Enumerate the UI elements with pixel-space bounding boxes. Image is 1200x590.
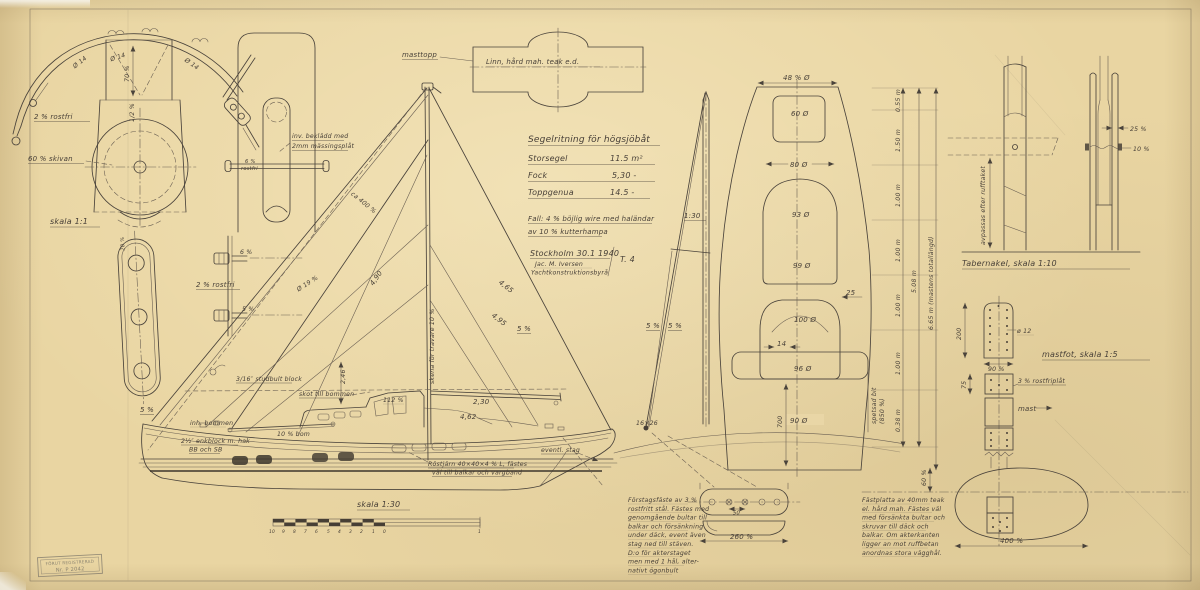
note-label: inv. beklädd med — [292, 133, 348, 140]
dim-label: 2,30 — [473, 398, 490, 406]
stamp-text: FÖRUT REGISTRERAD — [45, 559, 94, 567]
note-line: Fästplatta av 40mm teak — [862, 496, 945, 504]
material-label: Linn, hård mah. teak e.d. — [486, 57, 579, 66]
detail-label: masttopp — [402, 51, 437, 59]
dim-label: 6.65 m (mastens totallängd) — [927, 236, 935, 330]
scale-tick: 5 — [327, 529, 330, 535]
dim-label: 5 % — [646, 322, 660, 330]
dim-label: 5 % — [668, 322, 682, 330]
scale-bar: skala 1:30 10 9 8 7 6 5 4 3 2 1 0 1 — [269, 500, 481, 535]
sheave-label: 60 % skivan — [28, 155, 73, 163]
mast-outline — [719, 87, 871, 470]
dim-label: 93 Ø — [792, 211, 810, 219]
halyard-note: Fall: 4 % böjlig wire med haländar — [528, 215, 655, 223]
dark-port — [338, 452, 354, 461]
axle-label: 6 % — [245, 159, 255, 165]
sail-name: Toppgenua — [528, 188, 574, 197]
inner-forestay — [232, 140, 428, 428]
scale-label: 1:30 — [684, 212, 701, 220]
clamp-lug — [108, 31, 124, 35]
scale-label: skala 1:1 — [50, 217, 88, 226]
scale-tick: 7 — [304, 529, 307, 535]
dim-label: 80 Ø — [790, 161, 808, 169]
dark-port — [312, 453, 328, 462]
dim-label: 1.50 m — [895, 129, 902, 152]
dim-label: 6 % — [240, 249, 252, 256]
note-line: men med 1 hål, alter- — [628, 557, 699, 566]
material-label: 3 % rostfriplåt — [1018, 376, 1065, 385]
fitting-label: 3/16″ studbult block — [236, 375, 302, 383]
dim-label: Ø 19 % — [294, 274, 319, 294]
detail-label: mastfot, skala 1:5 — [1042, 350, 1118, 359]
footplate-note: Fästplatta av 40mm teak el. hård mah. Fä… — [862, 496, 945, 557]
portlight — [334, 412, 345, 418]
note-line: D:o för akterstaget — [628, 549, 691, 557]
dim-label: 60 Ø — [791, 110, 809, 118]
dark-port — [256, 455, 272, 464]
spec-block: Segelritning för högsjöbåt Storsegel 11.… — [528, 134, 660, 277]
forestay-fitting-detail: 50 260 % Förstagsfäste av 3 % rostfritt … — [628, 483, 800, 574]
dim-label: 1/2 % — [129, 103, 136, 122]
place-date: Stockholm 30.1 1940 — [530, 249, 619, 258]
forestay-note: Förstagsfäste av 3 % rostfritt stål. Fäs… — [628, 496, 709, 574]
clamp-plate — [223, 96, 253, 127]
mast-construction: 48 % Ø 60 Ø 80 Ø 93 Ø 99 Ø 25 100 Ø 14 9… — [719, 74, 938, 478]
part-label: mast — [1018, 405, 1036, 413]
note-label: 2mm mässingsplåt — [292, 141, 354, 150]
note-line: balkar. Om akterkanten — [862, 531, 940, 539]
dim-label: 400 % — [1000, 537, 1023, 545]
dim-label: 4,62 — [460, 413, 477, 421]
portlight — [318, 414, 329, 420]
note-line: el. hård mah. Fästes väl — [862, 504, 941, 513]
sheet-number: T. 4 — [620, 255, 635, 264]
dim-label: 75 — [961, 381, 968, 389]
stay-note: eventl. stag — [541, 446, 580, 454]
note-line: Förstagsfäste av 3 % — [628, 496, 697, 504]
masthead-crane-plan: 70 % 1/2 % Ø 14 Ø 14 Ø 14 2 % rostfri 60… — [12, 29, 243, 229]
note-line: genomgående bultar till — [628, 513, 707, 522]
mast-tang-strap: 20 % — [117, 230, 162, 405]
dim-label: ø 12 — [1016, 328, 1031, 335]
keel — [162, 478, 540, 490]
masthead-side-view: 6 % rostfri inv. beklädd med 2mm mässing… — [223, 33, 355, 232]
sail-area: 5,30 - — [612, 171, 636, 180]
stamp-text: Nr. P 2042 — [56, 566, 85, 574]
dim-label: 4,65 — [497, 279, 515, 296]
sail-area: 14.5 - — [610, 188, 634, 197]
scale-tick: 1 — [478, 529, 481, 535]
signature: Jac. M. Iversen — [533, 261, 583, 268]
dim-label: 90 % — [988, 366, 1005, 373]
sail-area: 11.5 m² — [610, 154, 643, 163]
dim-label: 200 — [956, 328, 963, 340]
deck-fitting — [558, 427, 564, 430]
dim-label: 5 % — [517, 325, 531, 333]
bolt-dots — [989, 305, 1008, 351]
scale-tick: 2 — [360, 529, 363, 535]
dim-label: 700 — [777, 416, 784, 428]
dim-label: 2,46 — [340, 369, 347, 384]
deck-curve — [614, 433, 905, 453]
fitting-label: skot till bommen — [299, 390, 354, 398]
halyard-note: av 10 % kutterhampa — [528, 228, 608, 236]
hull-port — [412, 444, 426, 451]
masthead — [422, 83, 433, 90]
dim-label: 0.38 m — [895, 409, 902, 432]
tabernacle-detail: avpassas efter rufftaket 25 % 10 % Taber… — [948, 56, 1150, 269]
dim-label: 5.08 m — [911, 270, 918, 293]
forestay — [152, 88, 427, 421]
dim-label: 99 Ø — [793, 262, 811, 270]
portlight — [350, 411, 361, 417]
scale-tick: 1 — [372, 529, 375, 535]
scale-tick: 3 — [349, 529, 352, 535]
drawing-sheet: 70 % 1/2 % Ø 14 Ø 14 Ø 14 2 % rostfri 60… — [0, 0, 1200, 590]
note-line: balkar och försänkning — [628, 523, 703, 530]
note-line: med försänkta bultar och — [862, 514, 945, 522]
dim-label: 1.00 m — [895, 352, 902, 375]
note-line: nativt ögonbult — [628, 566, 679, 574]
datum-line — [185, 389, 566, 391]
note-label: avpassas efter rufftaket — [979, 166, 987, 245]
dim-label: 20 % — [120, 237, 127, 251]
note-line: rostfritt stål. Fästes med — [628, 504, 709, 513]
dim-label: 50 — [733, 511, 741, 517]
dim-label: 0.55 m — [895, 89, 902, 112]
dim-label: Ø 14 — [182, 56, 200, 72]
rig-front-view: 1:30 5 % 5 % 16×26 — [614, 92, 905, 487]
dim-label: 1.00 m — [895, 294, 902, 317]
note-line: stag ned till stäven. — [628, 540, 694, 548]
chainplate-note: Röstjärn 40×40×4 % L, fästes — [428, 460, 528, 468]
material-label: 2 % rostfri — [34, 113, 73, 121]
dim-label: 4,90 — [368, 269, 384, 287]
note-line: ligger an mot ruffbetan — [862, 540, 939, 548]
scale-tick: 4 — [338, 529, 341, 535]
fitting-label: BB och SB — [189, 447, 223, 454]
note-label: spetsad bit — [870, 387, 878, 424]
sheet-border — [30, 9, 1191, 581]
dim-label: 25 % — [1130, 126, 1147, 133]
dim-label: 10 % bom — [277, 431, 310, 438]
shackle — [12, 137, 20, 145]
dim-label: 112 % — [383, 397, 404, 404]
dim-label: 70 % — [124, 65, 131, 82]
mast-track-label: skena för travare 10 % — [428, 309, 436, 384]
genoa-luff — [148, 88, 426, 450]
fitting-label: inh. bommen — [190, 420, 233, 427]
dim-label: 1.00 m — [895, 184, 902, 207]
dim-label: 25 — [846, 289, 856, 297]
clamp-lug — [142, 29, 158, 32]
clamp-lug — [192, 39, 208, 42]
blueprint-canvas: 70 % 1/2 % Ø 14 Ø 14 Ø 14 2 % rostfri 60… — [0, 0, 1200, 590]
shackle — [30, 100, 37, 107]
stem — [142, 424, 162, 478]
masttopp-detail: Linn, hård mah. teak e.d. masttopp — [402, 28, 646, 112]
scale-tick: 0 — [383, 529, 386, 535]
counter-stern — [592, 429, 615, 458]
scale-tick: 6 — [315, 529, 318, 535]
dim-label: 48 % Ø — [783, 74, 810, 82]
mast-bolt-detail: 6 % 5 % 2 % rostfri Ø 19 % — [196, 236, 320, 375]
dim-label: ca 400 % — [349, 191, 377, 216]
note-line: skruvar till däck och — [862, 522, 929, 530]
fitting-label: 2½″ enkblock m. hak — [181, 437, 250, 445]
dim-label: 96 Ø — [794, 365, 812, 373]
hull-port — [452, 443, 466, 450]
scale-tick: 8 — [293, 529, 296, 535]
material-label: 2 % rostfri — [196, 281, 235, 289]
dim-label: 100 Ø — [794, 316, 816, 324]
signature: Yachtkonstruktionsbyrå — [531, 268, 608, 277]
dim-label: Ø 14 — [70, 54, 88, 70]
dim-label: 90 Ø — [790, 417, 808, 425]
detail-label: Tabernakel, skala 1:10 — [962, 259, 1057, 268]
scale-tick: 9 — [282, 529, 285, 535]
hull-port — [392, 445, 406, 452]
scale-tick: 10 — [269, 529, 275, 535]
chainplate-note: väl till balkar och vargband — [432, 469, 522, 477]
dim-label: 10 % — [1133, 146, 1150, 153]
dim-label: 16×26 — [636, 420, 658, 427]
dim-label: 5 % — [140, 406, 154, 414]
dim-label: 260 % — [730, 533, 753, 541]
dim-label: Ø 14 — [108, 51, 126, 64]
sail-name: Storsegel — [528, 154, 568, 163]
note-line: anordnas stora vägghål. — [862, 548, 942, 557]
dim-label: 60 % — [921, 469, 928, 486]
sail-name: Fock — [528, 171, 547, 180]
axle-label: rostfri — [241, 166, 258, 172]
dim-label: 14 — [777, 340, 786, 348]
note-line: under däck, event även — [628, 531, 706, 539]
hollow-chamber — [773, 96, 825, 142]
deck-fitting — [545, 424, 553, 428]
dim-label: 1.00 m — [895, 239, 902, 262]
staysail-boom — [228, 424, 334, 429]
dim-label: 4,95 — [490, 312, 508, 329]
note-label: (850 %) — [879, 398, 886, 424]
fold-crease — [1055, 420, 1190, 555]
archive-stamp: FÖRUT REGISTRERAD Nr. P 2042 — [38, 554, 103, 576]
snap-hook — [210, 369, 216, 375]
scale-label: skala 1:30 — [357, 500, 400, 509]
fold-crease — [995, 55, 1065, 135]
foot-plate-oval — [955, 468, 1088, 540]
drawing-title: Segelritning för högsjöbåt — [528, 134, 650, 145]
dark-port — [232, 456, 248, 465]
